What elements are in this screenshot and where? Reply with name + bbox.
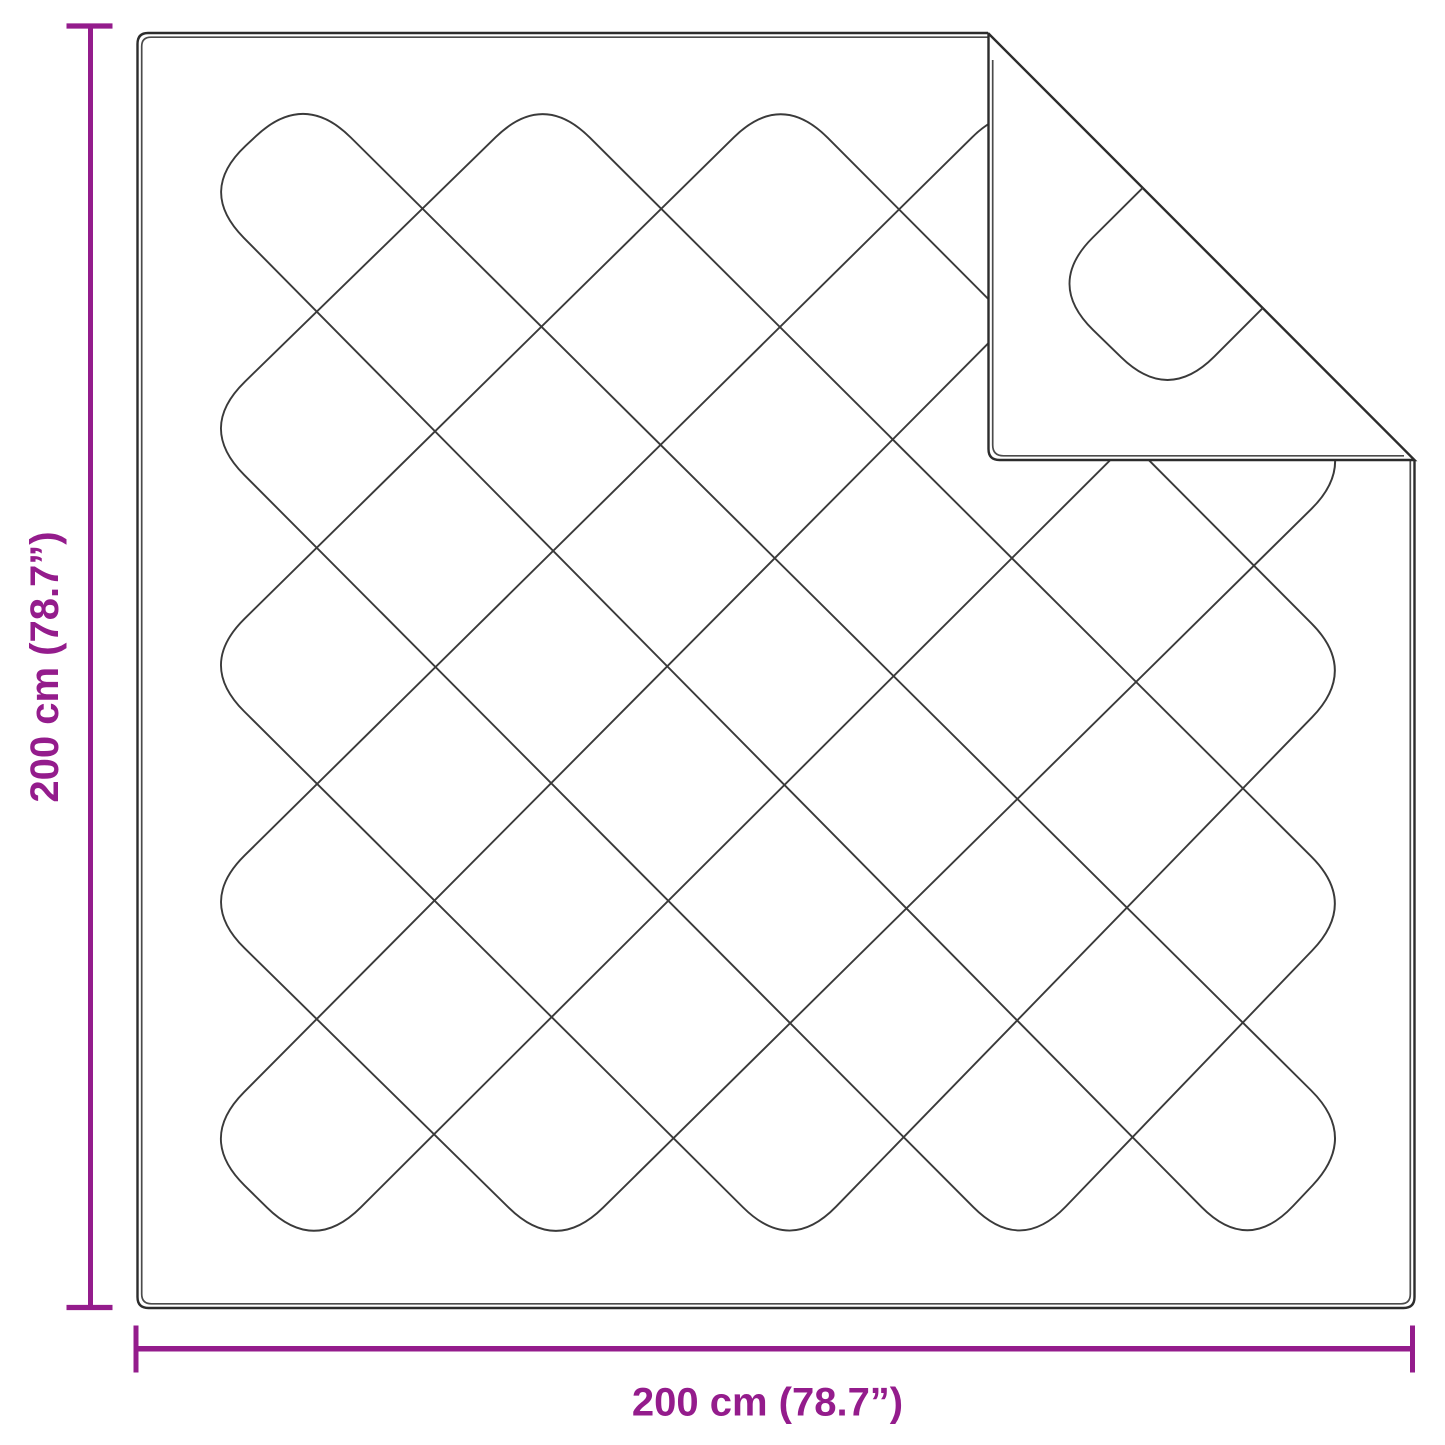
- svg-text:200 cm (78.7”): 200 cm (78.7”): [632, 1381, 903, 1425]
- svg-text:200 cm (78.7”): 200 cm (78.7”): [23, 531, 67, 802]
